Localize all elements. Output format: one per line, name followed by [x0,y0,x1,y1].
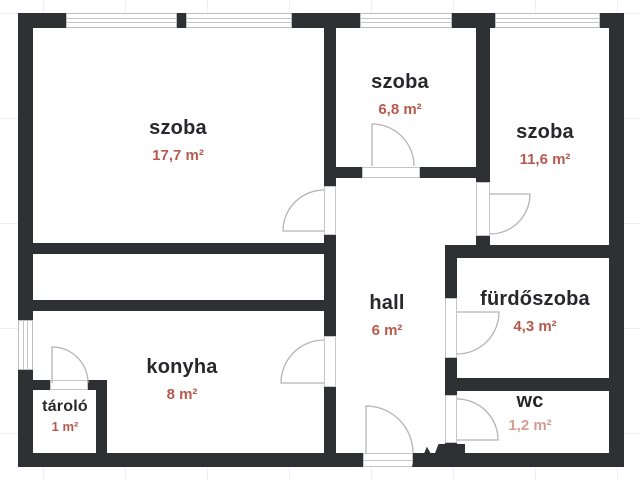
room-area: 6,8 m² [378,102,421,118]
door-szoba-large [283,190,324,231]
room-name: szoba [149,117,207,139]
room-label-szoba-large: szoba 17,7 m² [149,117,207,164]
door-wc [457,399,498,440]
room-name: szoba [516,121,574,143]
room-area: 1 m² [52,420,79,434]
room-label-hall: hall 6 m² [369,292,404,339]
room-area: 1,2 m² [508,418,551,434]
room-name: szoba [371,71,429,93]
room-name: wc [516,390,543,412]
room-area: 6 m² [372,323,403,339]
room-area: 8 m² [167,387,198,403]
room-name: konyha [146,356,217,378]
door-szoba-middle [372,124,414,166]
room-area: 17,7 m² [152,148,204,164]
door-entrance [366,406,413,453]
room-area: 11,6 m² [520,152,571,168]
room-label-szoba-right: szoba 11,6 m² [516,121,574,168]
room-label-szoba-middle: szoba 6,8 m² [371,71,429,118]
room-label-konyha: konyha 8 m² [146,356,217,403]
room-label-furdoszoba: fürdőszoba 4,3 m² [480,288,590,335]
door-tarolo [52,347,88,383]
room-label-wc: wc 1,2 m² [508,390,551,434]
room-label-tarolo: tároló 1 m² [42,398,88,434]
room-name: fürdőszoba [480,288,590,310]
door-szoba-right [490,194,530,234]
room-name: tároló [42,398,88,416]
room-name: hall [369,292,404,314]
door-konyha [281,340,324,383]
room-area: 4,3 m² [513,319,556,335]
